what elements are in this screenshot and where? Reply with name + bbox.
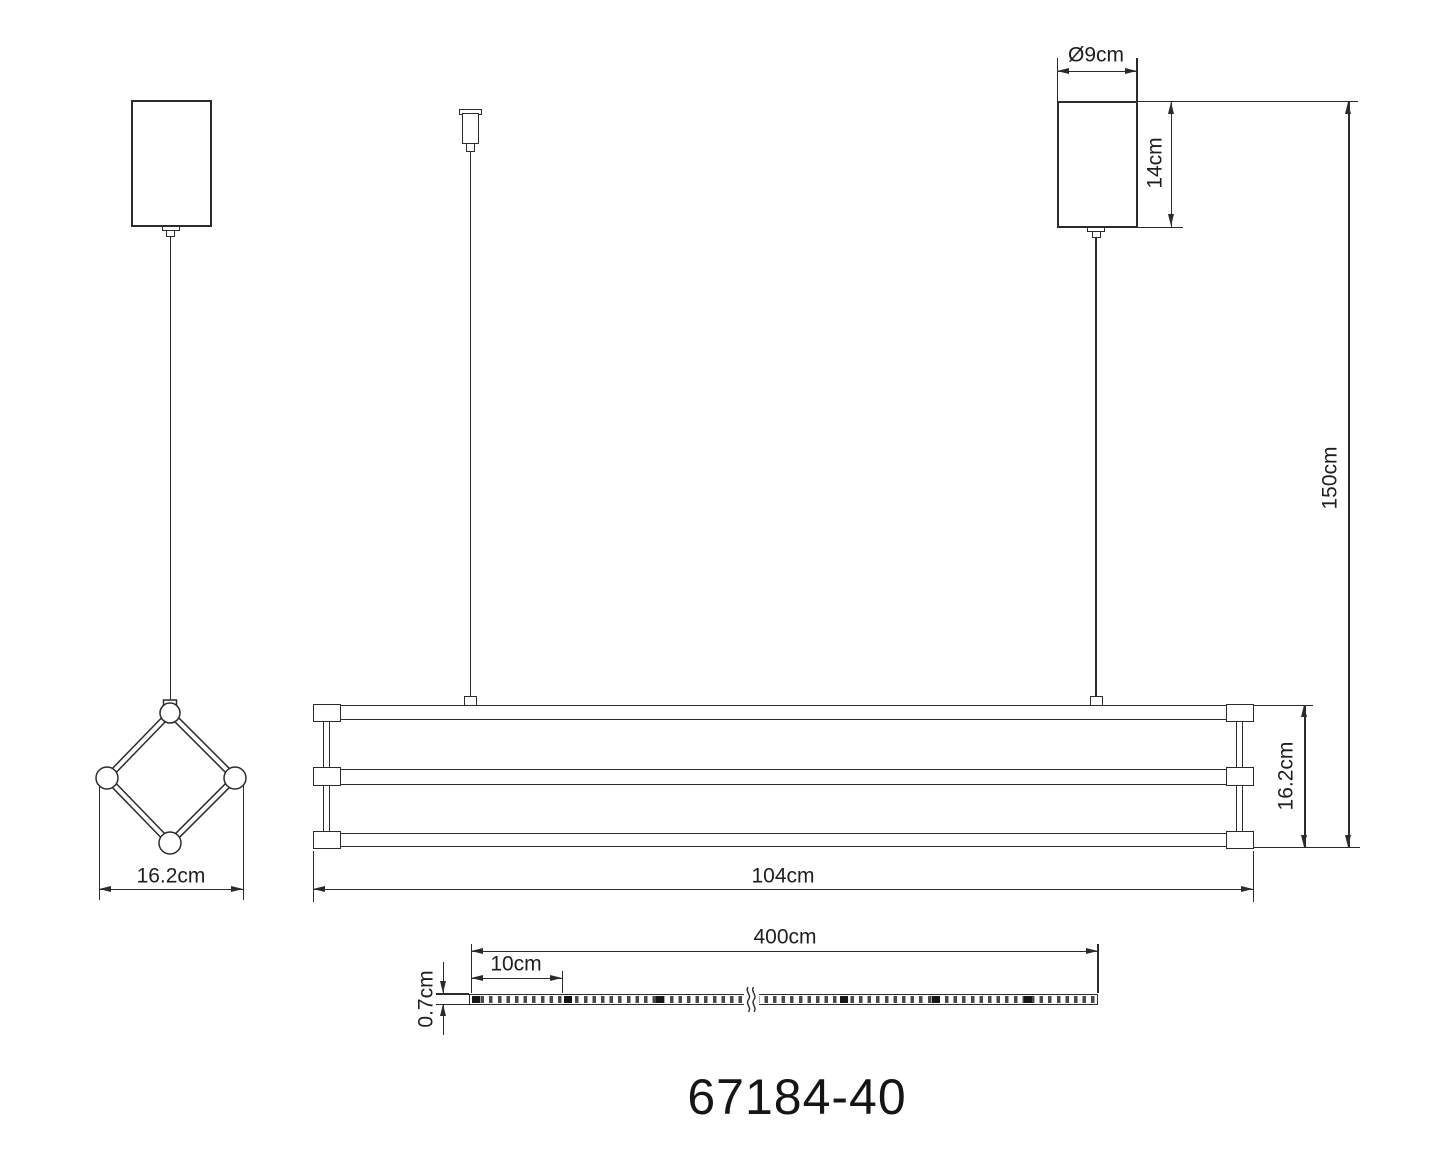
canopy-height-label: 14cm xyxy=(1145,137,1166,188)
suspension-cap-body xyxy=(462,113,479,144)
end-block-right-top xyxy=(1226,704,1254,722)
arrowhead-left-icon xyxy=(1057,68,1069,74)
dim-extension-line xyxy=(1253,847,1360,849)
led-strip-thickness-label: 0.7cm xyxy=(416,970,437,1027)
break-squiggle-icon xyxy=(744,987,759,1012)
led-strip-length-label: 400cm xyxy=(753,927,816,948)
arrowhead-up-icon xyxy=(1168,102,1174,114)
side-view-diamond-frame xyxy=(85,690,260,865)
dimension-line xyxy=(1171,102,1173,227)
led-strip-segment-label: 10cm xyxy=(490,954,541,975)
led-strip-body xyxy=(469,994,1098,1005)
diamond-struts-outer xyxy=(107,713,235,843)
strip-break-symbol xyxy=(744,987,759,1012)
end-block-right-middle xyxy=(1226,767,1254,786)
arrowhead-right-icon xyxy=(1125,68,1137,74)
front-view-canopy xyxy=(1057,101,1138,228)
right-cord xyxy=(1095,238,1097,696)
dim-extension-line xyxy=(1253,851,1255,902)
fixture-height-label: 16.2cm xyxy=(1276,742,1297,811)
arrowhead-down-icon xyxy=(1345,835,1351,847)
right-cord-connector xyxy=(1090,696,1103,706)
arrowhead-left-icon xyxy=(313,886,325,892)
arrowhead-down-icon xyxy=(1301,835,1307,847)
product-code-title: 67184-40 xyxy=(687,1068,906,1126)
dim-extension-line xyxy=(1137,227,1183,229)
side-view-canopy xyxy=(131,100,212,227)
arrowhead-right-icon xyxy=(1086,948,1098,954)
end-block-left-bottom xyxy=(313,831,341,849)
arrowhead-right-icon xyxy=(1241,886,1253,892)
lamp-node-top xyxy=(160,703,180,723)
end-block-left-middle xyxy=(313,767,341,786)
arrowhead-left-icon xyxy=(471,975,483,981)
end-block-right-bottom xyxy=(1226,831,1254,849)
end-block-left-top xyxy=(313,704,341,722)
diamond-struts-inner xyxy=(107,713,235,843)
dim-extension-line xyxy=(562,971,564,993)
mid-cord xyxy=(470,151,472,696)
arrowhead-up-icon xyxy=(440,1004,446,1016)
side-view-width-label: 16.2cm xyxy=(137,866,206,887)
technical-drawing-canvas: 16.2cm 104cm Ø9cm 14cm 16 xyxy=(0,0,1445,1156)
arrowhead-up-icon xyxy=(1345,102,1351,114)
lamp-node-bottom xyxy=(159,832,181,854)
front-view-canopy-nipple xyxy=(1092,231,1101,238)
lamp-node-right xyxy=(224,767,246,789)
dimension-line xyxy=(313,889,1253,891)
dim-extension-line xyxy=(313,851,315,902)
light-bar-top xyxy=(340,705,1227,720)
dimension-line xyxy=(1348,102,1350,847)
arrowhead-left-icon xyxy=(471,948,483,954)
dimension-line xyxy=(99,889,243,891)
dimension-line xyxy=(1304,705,1306,847)
dim-extension-line xyxy=(1057,58,1059,101)
fixture-length-label: 104cm xyxy=(751,866,814,887)
mid-cord-connector xyxy=(464,696,477,706)
arrowhead-left-icon xyxy=(99,886,111,892)
light-bar-bottom xyxy=(340,833,1227,848)
arrowhead-right-icon xyxy=(231,886,243,892)
arrowhead-up-icon xyxy=(1301,705,1307,717)
led-strip-segments-pattern xyxy=(472,996,1095,1003)
dim-extension-line xyxy=(436,993,469,995)
arrowhead-down-icon xyxy=(1168,214,1174,226)
arrowhead-down-icon xyxy=(440,981,446,993)
side-view-cord xyxy=(170,236,172,700)
light-bar-middle xyxy=(340,769,1227,785)
drop-height-label: 150cm xyxy=(1320,446,1341,509)
dim-extension-line xyxy=(1136,58,1138,101)
canopy-diameter-label: Ø9cm xyxy=(1068,45,1124,66)
dimension-line xyxy=(471,951,1098,953)
diamond-corner-lamps xyxy=(96,703,246,854)
dimension-line xyxy=(471,978,562,980)
lamp-node-left xyxy=(96,767,118,789)
arrowhead-right-icon xyxy=(550,975,562,981)
